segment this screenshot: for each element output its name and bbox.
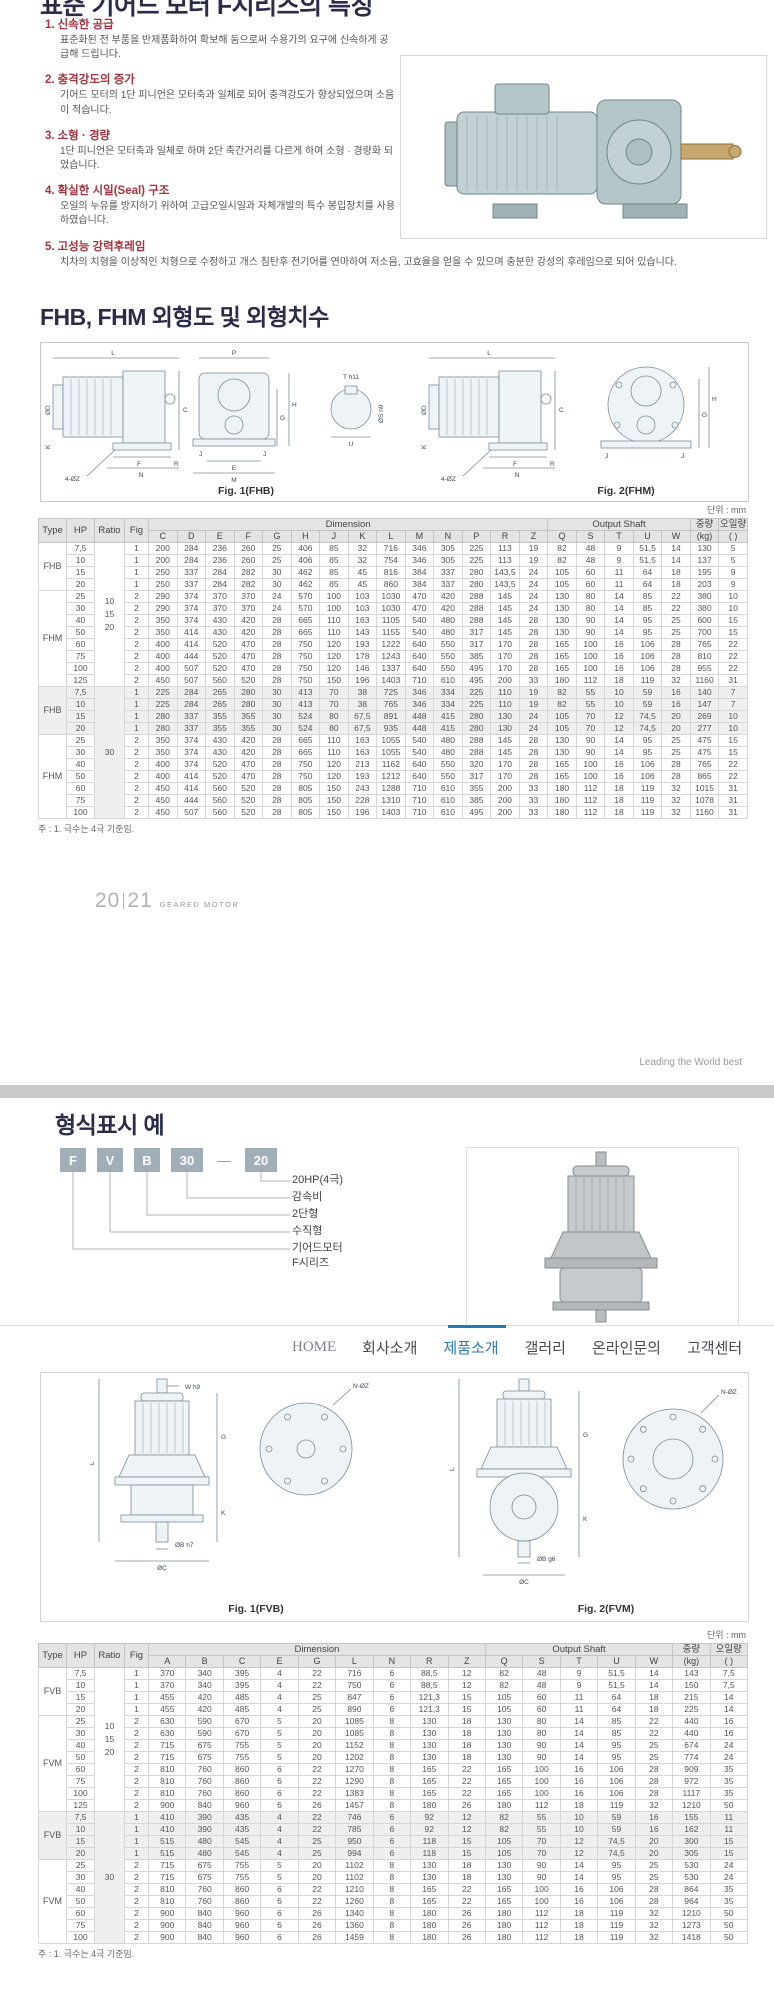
table-cell: 1 — [125, 1824, 149, 1836]
table-cell: 32 — [635, 1920, 672, 1932]
table-cell: 106 — [598, 1776, 635, 1788]
table-cell: 105 — [548, 711, 577, 723]
table-row: 201250337284282304628545860384337280143,… — [39, 579, 748, 591]
table-cell: 25 — [298, 1836, 335, 1848]
table-cell: 346 — [405, 699, 434, 711]
table-cell: 972 — [673, 1776, 710, 1788]
table-cell: 665 — [291, 615, 320, 627]
table-cell: 1 — [125, 699, 149, 711]
table-cell: 30 — [263, 567, 292, 579]
table-cell: 380 — [690, 591, 719, 603]
table-cell: 130 — [485, 1728, 522, 1740]
table-cell: 1210 — [673, 1908, 710, 1920]
table-header-cell: H — [291, 531, 320, 543]
table-cell: 507 — [177, 675, 206, 687]
table-cell: 495 — [462, 663, 491, 675]
table-header-cell: 중량 — [673, 1644, 710, 1656]
table-cell: 130 — [485, 1872, 522, 1884]
table-cell: 15 — [719, 627, 748, 639]
table-cell: 640 — [405, 639, 434, 651]
table-cell: 130 — [548, 615, 577, 627]
table-header-cell: Output Shaft — [485, 1644, 672, 1656]
table-row: 7529008409606261360818026180112181193212… — [39, 1920, 748, 1932]
table-cell: 4 — [261, 1824, 298, 1836]
table-cell: 170 — [491, 771, 520, 783]
table-cell: 74,5 — [633, 723, 662, 735]
table-cell: 118 — [411, 1848, 448, 1860]
table-header-cell: HP — [67, 519, 95, 543]
table-cell: 805 — [291, 783, 320, 795]
table-cell: 290 — [149, 603, 178, 615]
table-cell: 8 — [373, 1908, 410, 1920]
table-cell: 75 — [67, 651, 95, 663]
table-cell: 10 — [605, 699, 634, 711]
code-callout-stage: 2단형 — [292, 1207, 318, 1222]
table-cell: 18 — [448, 1860, 485, 1872]
table-cell: 130 — [548, 627, 577, 639]
table-cell: 1155 — [377, 627, 406, 639]
table-cell: 470 — [234, 759, 263, 771]
table-cell: 16 — [560, 1896, 597, 1908]
table-cell: 2 — [125, 1920, 149, 1932]
table-cell: 28 — [662, 759, 691, 771]
table-header-cell: Dimension — [149, 1644, 486, 1656]
table-cell: 22 — [298, 1776, 335, 1788]
table-cell: 67,5 — [348, 711, 377, 723]
table-cell: 370 — [149, 1668, 186, 1680]
catalog-page: 표준 기어드 모터 F시리즈의 특징 1.신속한 공급 표준화된 전 부품을 반… — [0, 0, 774, 2008]
svg-text:N-ØZ: N-ØZ — [353, 1383, 369, 1390]
table-header-cell: T — [605, 531, 634, 543]
table-cell: 8 — [373, 1884, 410, 1896]
table-cell: 337 — [177, 567, 206, 579]
table-cell: 48 — [523, 1680, 560, 1692]
table-cell: 520 — [206, 771, 235, 783]
table-cell: 280 — [462, 579, 491, 591]
table-cell: 130 — [411, 1860, 448, 1872]
svg-text:ØD: ØD — [421, 405, 428, 415]
table-cell: 11 — [560, 1704, 597, 1716]
table-cell: 430 — [206, 627, 235, 639]
table-cell: 350 — [149, 747, 178, 759]
svg-text:G: G — [221, 1434, 226, 1441]
table-cell: 18 — [560, 1920, 597, 1932]
table-cell: 12 — [560, 1848, 597, 1860]
table-cell: 284 — [177, 687, 206, 699]
table-cell: 1403 — [377, 675, 406, 687]
table-cell: 32 — [662, 795, 691, 807]
table-cell: 18 — [635, 1692, 672, 1704]
table-cell: 260 — [234, 555, 263, 567]
table-cell: 570 — [291, 603, 320, 615]
table-cell: 355 — [206, 711, 235, 723]
table-cell: 18 — [605, 675, 634, 687]
table-cell: 118 — [411, 1836, 448, 1848]
table-cell: 106 — [633, 651, 662, 663]
table-cell: 610 — [434, 675, 463, 687]
table-cell: 2 — [125, 1872, 149, 1884]
table-cell: 28 — [263, 771, 292, 783]
table-cell: 765 — [690, 759, 719, 771]
table-cell: 785 — [336, 1824, 373, 1836]
table-header-cell: S — [523, 1656, 560, 1668]
table-cell: 860 — [223, 1764, 260, 1776]
footer-label: GEARED MOTOR — [160, 900, 240, 909]
table-cell: 18 — [635, 1704, 672, 1716]
feature-number: 2. — [45, 74, 55, 86]
table-cell: 106 — [633, 639, 662, 651]
table-cell: 130 — [548, 603, 577, 615]
table-cell: 14 — [662, 555, 691, 567]
table-cell: 145 — [491, 615, 520, 627]
table-cell: 145 — [491, 627, 520, 639]
table-cell: 7,5 — [67, 687, 95, 699]
table-row: 4028107608606221210816522165100161062886… — [39, 1884, 748, 1896]
table-cell: 370 — [206, 603, 235, 615]
table-cell: 60 — [67, 639, 95, 651]
fvb-fvm-dimension-table: TypeHPRatioFigDimensionOutput Shaft중량오일량… — [38, 1643, 748, 1944]
table-cell: 10 — [605, 687, 634, 699]
table-cell: 130 — [491, 723, 520, 735]
table-cell: 20 — [635, 1848, 672, 1860]
table-cell: 14 — [605, 627, 634, 639]
table-cell: 143,5 — [491, 579, 520, 591]
table-cell: 22 — [719, 651, 748, 663]
table-cell: 106 — [598, 1764, 635, 1776]
table-cell: 860 — [223, 1788, 260, 1800]
table-cell: 900 — [149, 1908, 186, 1920]
table-row: 1002810760860622138381652216510016106281… — [39, 1788, 748, 1800]
table-cell: 200 — [491, 795, 520, 807]
motor-illustration — [401, 56, 764, 236]
table-cell: 1310 — [377, 795, 406, 807]
nav-item-inquiry[interactable]: 온라인문의 — [592, 1337, 661, 1358]
table-cell: 280 — [149, 711, 178, 723]
table-cell: 2 — [125, 627, 149, 639]
table-cell: 11 — [605, 567, 634, 579]
table-cell: 60 — [67, 1908, 95, 1920]
table-cell: 415 — [434, 723, 463, 735]
table-row: 4024003745204702875012021311626405503201… — [39, 759, 748, 771]
table-cell: 193 — [348, 639, 377, 651]
table-header-cell: U — [633, 531, 662, 543]
table-cell: 120 — [320, 759, 349, 771]
table-cell: 228 — [348, 795, 377, 807]
table-cell: 2 — [125, 783, 149, 795]
table-cell: 80 — [523, 1728, 560, 1740]
table-cell: 24 — [710, 1752, 747, 1764]
table-row: 1002900840960626145981802618011218119321… — [39, 1932, 748, 1944]
table-cell: 350 — [149, 615, 178, 627]
table-cell: 1162 — [377, 759, 406, 771]
table-cell: 51,5 — [598, 1680, 635, 1692]
feature-number: 1. — [45, 19, 55, 31]
table-cell: 1 — [125, 1680, 149, 1692]
table-cell: 18 — [605, 783, 634, 795]
table-row: 101370340395422750688,5128248951,5141507… — [39, 1680, 748, 1692]
feature-title: 충격강도의 증가 — [58, 74, 135, 86]
table-cell: 28 — [263, 795, 292, 807]
table-cell: 20 — [67, 1848, 95, 1860]
table-cell: 119 — [633, 783, 662, 795]
table-cell: 22 — [662, 603, 691, 615]
table-header-cell: E — [261, 1656, 298, 1668]
table-cell: 9 — [719, 579, 748, 591]
table-cell: 19 — [519, 699, 548, 711]
table-header-cell: HP — [67, 1644, 95, 1668]
table-header-cell: G — [298, 1656, 335, 1668]
table-cell: 8 — [373, 1776, 410, 1788]
table-cell: 31 — [719, 807, 748, 819]
table-cell: 10 — [560, 1812, 597, 1824]
table-cell: 346 — [405, 543, 434, 555]
table-row: 1514554204854258476121,31510560116418215… — [39, 1692, 748, 1704]
table-cell: 110 — [320, 735, 349, 747]
table-cell: 545 — [223, 1848, 260, 1860]
table-header-cell: 오일량 — [710, 1644, 747, 1656]
table-cell: 30 — [67, 603, 95, 615]
table-cell: 374 — [177, 747, 206, 759]
table-cell: 610 — [434, 795, 463, 807]
table-cell: 25 — [298, 1704, 335, 1716]
table-cell: 105 — [485, 1692, 522, 1704]
svg-text:L: L — [111, 350, 115, 357]
table-cell: 85 — [320, 579, 349, 591]
table-cell: 32 — [635, 1800, 672, 1812]
table-cell: 80 — [576, 603, 605, 615]
table-cell: 317 — [462, 771, 491, 783]
table-cell: 130 — [411, 1728, 448, 1740]
table-cell: 1 — [125, 1692, 149, 1704]
table-cell: 130 — [411, 1872, 448, 1884]
nav-item-gallery[interactable]: 갤러리 — [525, 1337, 566, 1358]
table-row: 4023503744304202866511016311055404802881… — [39, 615, 748, 627]
table-cell: 20 — [662, 711, 691, 723]
table-cell: 760 — [186, 1884, 223, 1896]
nav-item-company[interactable]: 회사소개 — [362, 1337, 417, 1358]
table-cell: 18 — [605, 795, 634, 807]
table-cell: 755 — [223, 1872, 260, 1884]
table-cell: 750 — [291, 759, 320, 771]
table-cell: 50 — [710, 1908, 747, 1920]
table-header-cell: P — [462, 531, 491, 543]
table-cell: 119 — [633, 795, 662, 807]
table-cell: 70 — [320, 699, 349, 711]
table-cell: 178 — [348, 651, 377, 663]
table-cell: 675 — [186, 1740, 223, 1752]
table-cell: 22 — [448, 1884, 485, 1896]
table-cell: 14 — [560, 1752, 597, 1764]
table-cell: 320 — [462, 759, 491, 771]
table-cell: 225 — [462, 699, 491, 711]
table-cell: 610 — [434, 807, 463, 819]
table-cell: 15 — [67, 567, 95, 579]
table-cell: 1 — [125, 1704, 149, 1716]
table-cell: 10 — [67, 555, 95, 567]
table-cell: 1212 — [377, 771, 406, 783]
table-cell: 485 — [223, 1692, 260, 1704]
table-cell: 1 — [125, 723, 149, 735]
table-cell: 22 — [635, 1728, 672, 1740]
svg-text:L: L — [487, 350, 491, 357]
table-cell: 6 — [373, 1824, 410, 1836]
table-header-cell: 오일량 — [719, 519, 748, 531]
table-cell: 755 — [223, 1860, 260, 1872]
table-cell: 1152 — [336, 1740, 373, 1752]
table-cell: 14 — [662, 543, 691, 555]
table-cell: 5 — [261, 1752, 298, 1764]
table-cell: 385 — [462, 795, 491, 807]
table-cell: 48 — [576, 543, 605, 555]
table-cell: 6 — [261, 1908, 298, 1920]
table-cell: 430 — [206, 747, 235, 759]
table-cell: 28 — [263, 675, 292, 687]
feature-number: 4. — [45, 185, 55, 197]
table-cell: 95 — [598, 1740, 635, 1752]
table-cell: 165 — [411, 1776, 448, 1788]
table-cell: 40 — [67, 1884, 95, 1896]
table-cell: 410 — [149, 1824, 186, 1836]
table-cell: 225 — [462, 543, 491, 555]
table-cell: 85 — [598, 1728, 635, 1740]
table-cell: 530 — [673, 1860, 710, 1872]
table-cell: 400 — [149, 759, 178, 771]
table-cell: 200 — [149, 543, 178, 555]
page-number-left: 20 — [95, 889, 120, 912]
table-row: 3023503744304202866511016310555404802881… — [39, 747, 748, 759]
table-cell: 180 — [411, 1920, 448, 1932]
table-cell: 100 — [576, 639, 605, 651]
table-cell: 110 — [320, 627, 349, 639]
table-cell: 1 — [125, 711, 149, 723]
table-cell: 750 — [291, 639, 320, 651]
table-cell: 374 — [177, 615, 206, 627]
table-cell: 1210 — [336, 1884, 373, 1896]
table-cell: 415 — [434, 711, 463, 723]
table-cell: 280 — [149, 723, 178, 735]
table-cell: 120 — [320, 639, 349, 651]
table-cell: 130 — [548, 747, 577, 759]
table-cell: 121,3 — [411, 1704, 448, 1716]
table-cell: 55 — [576, 699, 605, 711]
table-cell: 50 — [710, 1920, 747, 1932]
svg-text:C: C — [559, 407, 564, 414]
table-cell: 1085 — [336, 1716, 373, 1728]
table-cell: 891 — [377, 711, 406, 723]
table-header-cell: C — [223, 1656, 260, 1668]
page-number-footer: 2021GEARED MOTOR — [95, 889, 239, 913]
table-cell: 200 — [149, 555, 178, 567]
table-cell: 340 — [186, 1680, 223, 1692]
table-cell: 540 — [405, 627, 434, 639]
table-cell: 163 — [348, 615, 377, 627]
table-cell: 277 — [690, 723, 719, 735]
nav-item-home[interactable]: HOME — [292, 1339, 336, 1356]
table-cell: 560 — [206, 807, 235, 819]
table-cell: 119 — [633, 675, 662, 687]
table-cell: 370 — [234, 591, 263, 603]
table-cell: 12 — [448, 1812, 485, 1824]
table-cell: 6 — [261, 1932, 298, 1944]
table-header-cell: Z — [519, 531, 548, 543]
table-cell: 30 — [95, 1812, 125, 1944]
table-cell: 774 — [673, 1752, 710, 1764]
table-cell: 455 — [149, 1692, 186, 1704]
table-cell: 15 — [448, 1848, 485, 1860]
table-cell: 55 — [523, 1824, 560, 1836]
table-row: FVB7,53014103904354227466921282551059161… — [39, 1812, 748, 1824]
table-cell: 38 — [348, 699, 377, 711]
table-row: FVM2526305906705201085813018130801485224… — [39, 1716, 748, 1728]
feature-number: 5. — [45, 241, 55, 253]
table-header-cell: Z — [448, 1656, 485, 1668]
table-cell: 82 — [548, 555, 577, 567]
table-cell: 8 — [373, 1800, 410, 1812]
table-cell: 288 — [462, 603, 491, 615]
table-cell: 5 — [261, 1716, 298, 1728]
table-cell: 2 — [125, 603, 149, 615]
site-navigation: HOME 회사소개 제품소개 갤러리 온라인문의 고객센터 — [0, 1325, 774, 1369]
table-cell: 60 — [523, 1692, 560, 1704]
table-cell: 7,5 — [710, 1680, 747, 1692]
table-cell: 1403 — [377, 807, 406, 819]
table-cell: 22 — [298, 1824, 335, 1836]
table-cell: 82 — [485, 1668, 522, 1680]
table-cell: 715 — [149, 1752, 186, 1764]
table-cell: 480 — [434, 627, 463, 639]
table-cell: 860 — [223, 1896, 260, 1908]
table-cell: 280 — [234, 699, 263, 711]
table-cell: 31 — [719, 783, 748, 795]
table-cell: 507 — [177, 663, 206, 675]
table-cell: 32 — [662, 807, 691, 819]
table-cell: 95 — [633, 627, 662, 639]
nav-item-support[interactable]: 고객센터 — [687, 1337, 742, 1358]
table-cell: 137 — [690, 555, 719, 567]
table-cell: 85 — [633, 603, 662, 615]
table-cell: 2 — [125, 591, 149, 603]
table-header-cell: Type — [39, 519, 67, 543]
svg-text:G: G — [583, 1432, 588, 1439]
table-cell: 25 — [662, 627, 691, 639]
table-cell: 715 — [149, 1860, 186, 1872]
table-cell: 165 — [485, 1884, 522, 1896]
table-cell: 4 — [261, 1668, 298, 1680]
table-cell: 22 — [298, 1764, 335, 1776]
table-cell: 284 — [206, 579, 235, 591]
table-cell: 70 — [576, 711, 605, 723]
table-cell: 145 — [491, 591, 520, 603]
table-cell: 640 — [405, 759, 434, 771]
table-cell: 2 — [125, 1728, 149, 1740]
table-cell: 215 — [673, 1692, 710, 1704]
table-cell: 28 — [662, 663, 691, 675]
table-cell: 810 — [690, 651, 719, 663]
table-cell: 82 — [548, 543, 577, 555]
table-cell: 374 — [177, 591, 206, 603]
table-cell: 1015 — [690, 783, 719, 795]
table-cell: 810 — [149, 1896, 186, 1908]
table-cell: 4 — [261, 1836, 298, 1848]
table-cell: 370 — [234, 603, 263, 615]
table-cell: 2 — [125, 1764, 149, 1776]
table-cell: 32 — [662, 783, 691, 795]
table-cell: 805 — [291, 807, 320, 819]
table-cell: 860 — [223, 1884, 260, 1896]
feature-body: 치차의 치형을 이상적인 치형으로 수정하고 개스 침탄후 전기어를 연마하여 … — [60, 256, 757, 270]
table-cell: 520 — [206, 663, 235, 675]
nav-item-products[interactable]: 제품소개 — [443, 1337, 498, 1358]
